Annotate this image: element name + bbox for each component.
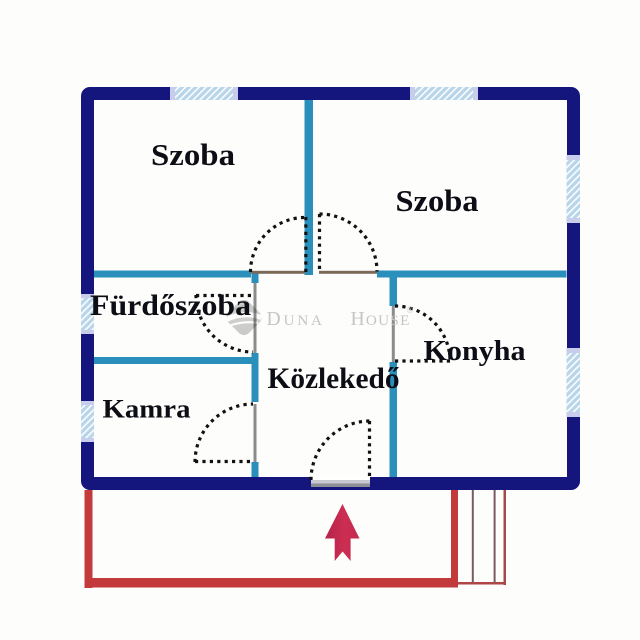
svg-text:Konyha: Konyha [424, 335, 527, 367]
svg-text:®: ® [407, 305, 414, 315]
svg-text:Szoba: Szoba [151, 138, 235, 172]
svg-text:Szoba: Szoba [396, 184, 479, 218]
svg-text:DUNA: DUNA [267, 309, 325, 330]
svg-text:Közlekedő: Közlekedő [268, 363, 400, 395]
svg-text:Kamra: Kamra [103, 394, 191, 424]
svg-text:Fürdőszoba: Fürdőszoba [90, 289, 251, 322]
svg-text:HOUSE: HOUSE [351, 309, 411, 330]
